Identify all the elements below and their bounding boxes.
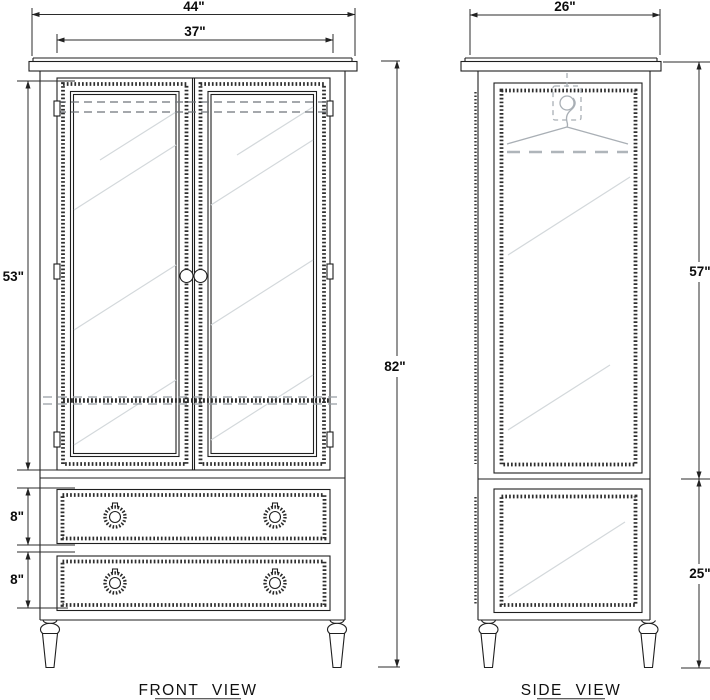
technical-drawing-canvas: 44" 37" 53" 8" 8" 82" bbox=[0, 0, 710, 700]
front-legs bbox=[41, 621, 347, 668]
drawer-ring-pull bbox=[105, 503, 125, 527]
side-legs bbox=[479, 621, 658, 668]
dim-overall-height: 82" bbox=[378, 61, 406, 667]
dim-doors-width: 37" bbox=[57, 24, 333, 53]
dim-label-doors-height: 53" bbox=[3, 269, 24, 284]
side-lower-panel bbox=[494, 489, 642, 613]
side-view-label: SIDE VIEW bbox=[521, 682, 622, 699]
dim-label-depth: 26" bbox=[554, 0, 575, 14]
dim-label-overall-width: 44" bbox=[183, 0, 204, 14]
left-door bbox=[63, 84, 187, 464]
dim-label-lower-section: 25" bbox=[689, 566, 710, 581]
dim-depth: 26" bbox=[470, 0, 660, 55]
dim-upper-section-height: 57" bbox=[663, 62, 710, 479]
side-view-drawing bbox=[461, 58, 661, 668]
dim-label-doors-width: 37" bbox=[184, 24, 205, 39]
dim-label-overall-height: 82" bbox=[384, 359, 405, 374]
front-view-drawing bbox=[29, 58, 357, 668]
front-top-slab bbox=[29, 58, 357, 71]
clothes-hanger-icon bbox=[507, 73, 628, 152]
front-view-label: FRONT VIEW bbox=[138, 682, 257, 699]
top-drawer bbox=[57, 490, 330, 544]
bottom-drawer bbox=[57, 556, 330, 611]
dim-label-upper-section: 57" bbox=[689, 264, 710, 279]
dim-top-drawer-height: 8" bbox=[10, 488, 75, 545]
dim-label-bottom-drawer: 8" bbox=[10, 572, 24, 587]
door-section bbox=[43, 78, 342, 470]
dim-bottom-drawer-height: 8" bbox=[10, 552, 75, 608]
right-door-knob bbox=[194, 270, 207, 283]
side-top-slab bbox=[461, 58, 661, 71]
drawer-ring-pull bbox=[265, 569, 285, 593]
armoire-dimension-drawing: 44" 37" 53" 8" 8" 82" bbox=[0, 0, 710, 700]
dim-label-top-drawer: 8" bbox=[10, 509, 24, 524]
left-door-knob bbox=[180, 270, 193, 283]
drawer-ring-pull bbox=[265, 503, 285, 527]
dim-lower-section-height: 25" bbox=[681, 479, 710, 668]
right-door bbox=[201, 84, 325, 464]
drawer-ring-pull bbox=[105, 569, 125, 593]
